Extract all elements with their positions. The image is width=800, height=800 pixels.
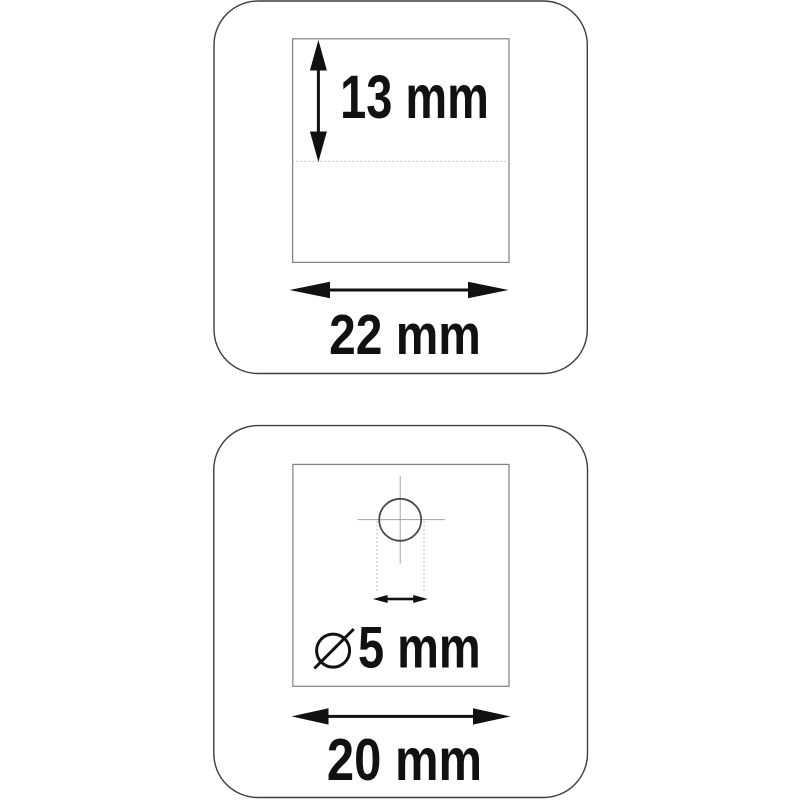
svg-text:5 mm: 5 mm <box>358 616 481 681</box>
svg-text:20 mm: 20 mm <box>327 728 482 793</box>
svg-text:13 mm: 13 mm <box>340 63 489 131</box>
svg-text:22 mm: 22 mm <box>329 303 481 367</box>
